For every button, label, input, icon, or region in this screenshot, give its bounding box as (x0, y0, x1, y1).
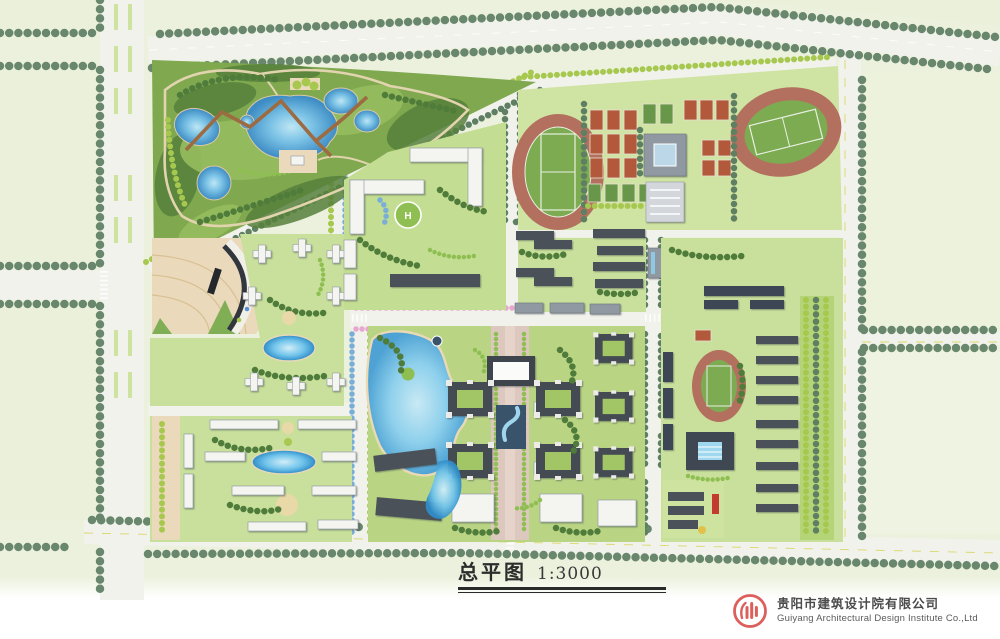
academic-core (367, 326, 645, 542)
design-institute-logo-icon (731, 592, 769, 630)
helipad-marking: H (404, 211, 411, 222)
campus-east (661, 238, 843, 542)
natatorium (686, 432, 734, 470)
construction-block (662, 480, 724, 538)
stadium-small-east (692, 350, 746, 422)
design-institute-signature: 贵阳市建筑设计院有限公司 Guiyang Architectural Desig… (731, 592, 978, 630)
plan-title-block: 总平图1:3000 (458, 556, 688, 593)
plan-scale-text: 1:3000 (537, 564, 603, 584)
dormitory-blocks-north (515, 229, 662, 314)
company-name-en: Guiyang Architectural Design Institute C… (777, 613, 978, 625)
main-gate-building (487, 356, 535, 386)
sports-zone (512, 66, 851, 230)
dormitory-bars-east (756, 336, 798, 512)
site-plan-drawing: H (0, 0, 1000, 639)
title-underline-thick (458, 587, 666, 590)
plan-title-text: 总平图 (458, 560, 527, 584)
company-name-cn: 贵阳市建筑设计院有限公司 (777, 597, 978, 613)
residential-south (150, 416, 358, 542)
title-underline-thin (458, 592, 666, 593)
site-plan-sheet: H (0, 0, 1000, 639)
